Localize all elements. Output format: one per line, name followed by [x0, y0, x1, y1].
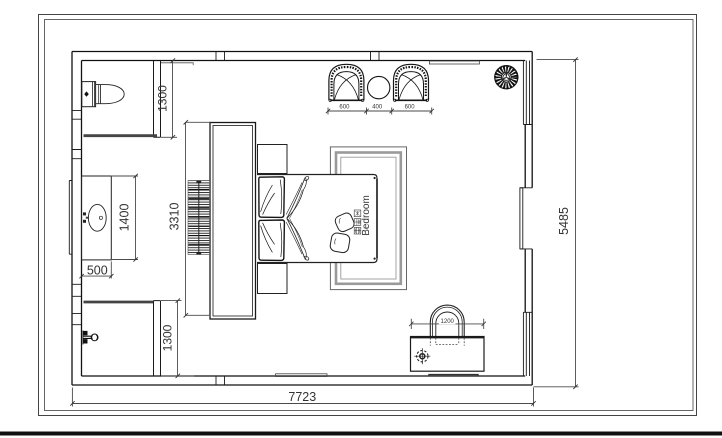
svg-text:3310: 3310 [167, 203, 181, 231]
svg-text:1200: 1200 [441, 319, 455, 325]
svg-text:400: 400 [372, 104, 383, 110]
svg-text:7723: 7723 [288, 390, 316, 404]
svg-text:500: 500 [87, 263, 108, 277]
svg-text:600: 600 [405, 104, 416, 110]
svg-text:1300: 1300 [156, 85, 170, 112]
svg-text:600: 600 [339, 104, 350, 110]
svg-text:5485: 5485 [557, 207, 571, 235]
svg-text:Bedroom: Bedroom [361, 195, 372, 236]
svg-text:1300: 1300 [160, 324, 174, 351]
svg-text:1400: 1400 [118, 204, 132, 232]
